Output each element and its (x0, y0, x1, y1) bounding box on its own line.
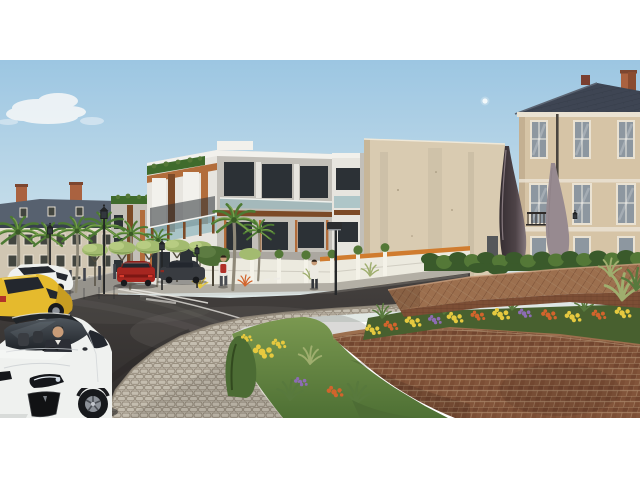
tesla-grille (28, 392, 60, 417)
tesla-front-wheel (78, 386, 108, 418)
letterbox-bottom (0, 418, 640, 480)
right-building-windows (529, 120, 636, 260)
street-scene-illustration (0, 60, 640, 418)
modern-rooftop-slab (217, 141, 253, 150)
rendered-photo (0, 0, 640, 480)
letterbox-top (0, 0, 640, 60)
